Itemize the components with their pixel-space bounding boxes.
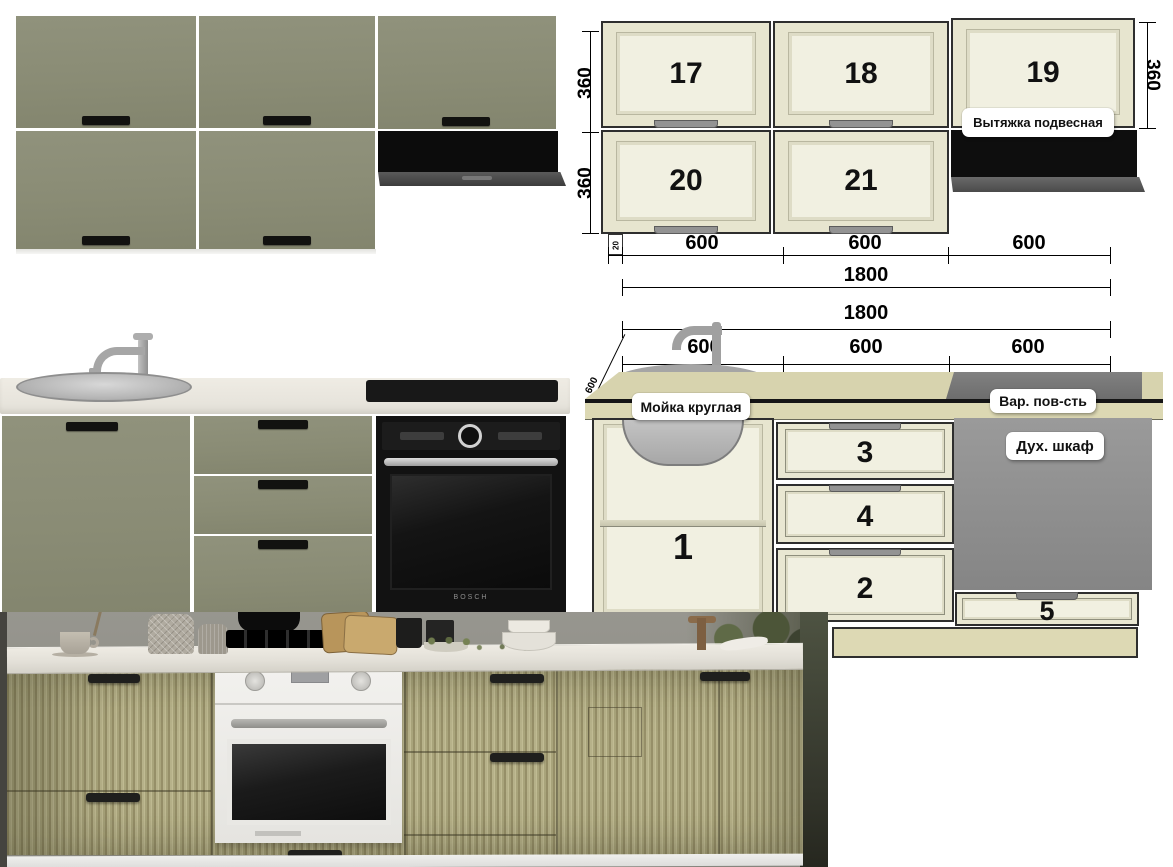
door-handle <box>263 236 311 245</box>
coffee-cup <box>60 632 90 654</box>
small-vase <box>198 624 228 654</box>
dim-tick <box>582 233 599 234</box>
dim-1800: 1800 <box>826 302 906 325</box>
diagram-cabinet-20: 20 <box>601 130 771 234</box>
unit-number: 2 <box>778 572 952 606</box>
hood-switch <box>462 176 492 180</box>
diagram-drawer-3: 3 <box>776 422 954 480</box>
drawer-front <box>194 476 372 534</box>
upper-cabinets-diagram: 17 18 19 20 21 Вытяжка подвесная <box>578 6 1173 298</box>
dim-small-box: 20 <box>608 234 623 255</box>
door-handle <box>82 116 130 125</box>
dim-tick <box>783 247 784 264</box>
diagram-hood <box>951 130 1137 177</box>
base-door <box>2 416 190 613</box>
cooker-hood-underside <box>378 172 566 186</box>
dim-1800: 1800 <box>826 264 906 287</box>
drawer-handle <box>258 540 308 549</box>
faucet-spout <box>93 347 145 373</box>
dim-360-left-top: 360 <box>575 61 597 105</box>
dim-tick <box>582 31 599 32</box>
photo-handle <box>490 753 544 762</box>
cooktop <box>366 380 558 402</box>
dim-tick <box>622 247 623 264</box>
kitchen-photo <box>0 612 828 867</box>
sink-label: Мойка круглая <box>632 393 750 420</box>
oven-window <box>390 474 552 590</box>
oven-knob <box>245 671 265 691</box>
door-handle <box>66 422 118 431</box>
base-cabinets-diagram: 1800 600 600 600 600 Мойка круглая Вар. … <box>578 298 1173 662</box>
panel-frame-lines <box>588 707 642 757</box>
drawer-handle-notch <box>829 549 901 556</box>
cooker-hood-render <box>378 131 558 172</box>
cabinet-number: 17 <box>603 57 769 91</box>
drawer-handle <box>258 420 308 429</box>
dim-tick <box>622 279 623 296</box>
textured-vase <box>148 614 194 654</box>
dim-tick <box>783 356 784 373</box>
drawer-handle-notch <box>829 423 901 430</box>
dim-line <box>622 287 1110 288</box>
round-sink <box>16 372 192 402</box>
cutting-board <box>343 615 399 656</box>
kitchen-design-sheet: 17 18 19 20 21 Вытяжка подвесная <box>0 0 1173 867</box>
drawer-front <box>194 536 372 613</box>
cabinet-number: 19 <box>953 56 1133 90</box>
wall-cabinet-door <box>16 131 196 249</box>
diagram-plinth <box>832 627 1138 658</box>
wall-cabinet-door <box>199 131 375 249</box>
cabinet-seam <box>211 668 213 855</box>
dim-tick <box>948 247 949 264</box>
oven-display <box>400 432 444 440</box>
photo-handle <box>700 672 750 681</box>
drawer-handle-notch <box>829 485 901 492</box>
diagram-drawer-2: 2 <box>776 548 954 622</box>
dim-360-right: 360 <box>1141 53 1163 97</box>
cabinet-number: 21 <box>775 164 947 198</box>
hood-label: Вытяжка подвесная <box>962 108 1114 137</box>
cabinet-number: 18 <box>775 57 947 91</box>
oven-knob <box>351 671 371 691</box>
cabinet-seam <box>556 668 558 855</box>
flap-handle <box>829 120 893 128</box>
diagram-drawer-4: 4 <box>776 484 954 544</box>
dim-600: 600 <box>999 232 1059 255</box>
photo-plinth <box>7 854 803 867</box>
door-handle <box>82 236 130 245</box>
unit-number: 1 <box>594 526 772 568</box>
dim-tick <box>1139 22 1156 23</box>
diagram-cabinet-17: 17 <box>601 21 771 128</box>
white-bowl-bottom <box>502 632 556 651</box>
flap-handle <box>654 120 718 128</box>
dim-tick <box>1110 279 1111 296</box>
oven-brand-smudge <box>255 831 301 836</box>
oven-door-window <box>227 739 391 825</box>
oven-panel-seam <box>215 703 402 705</box>
unit-number: 4 <box>778 500 952 534</box>
photo-right-shadow <box>800 612 828 867</box>
oven-handle-bar <box>231 719 387 728</box>
black-pan <box>238 612 300 632</box>
photo-handle <box>490 674 544 683</box>
hob-label: Вар. пов-сть <box>990 389 1096 413</box>
oven-brand: BOSCH <box>376 594 566 601</box>
dim-tick <box>622 356 623 373</box>
oven-label: Дух. шкаф <box>1006 432 1104 460</box>
wall-cabinet-door <box>16 16 196 128</box>
black-mug <box>396 618 422 648</box>
oven-handle <box>384 458 558 466</box>
dim-tick <box>1110 247 1111 264</box>
diagram-sink-cabinet: 1 <box>592 418 774 621</box>
dim-tick <box>1110 321 1111 338</box>
dim-600: 600 <box>672 232 732 255</box>
cabinet-number: 20 <box>603 164 769 198</box>
dim-small: 20 <box>612 234 621 255</box>
dim-tick <box>949 356 950 373</box>
drawer-front <box>194 416 372 474</box>
upper-cabinets-render <box>8 14 560 260</box>
base-cabinets-render: BOSCH <box>0 330 572 613</box>
bronze-faucet <box>697 618 706 650</box>
photo-handle <box>88 674 140 683</box>
photo-oven <box>215 657 402 843</box>
photo-left-edge <box>0 612 7 867</box>
unit-number: 5 <box>957 596 1137 627</box>
oven-dial <box>458 424 482 448</box>
oven-display <box>498 432 542 440</box>
diagram-cabinet-21: 21 <box>773 130 949 234</box>
diagram-hood-underside <box>951 177 1145 192</box>
unit-number: 3 <box>778 436 952 470</box>
drawer-seam <box>7 790 211 792</box>
dim-360-left-bottom: 360 <box>575 161 597 205</box>
dim-600: 600 <box>835 232 895 255</box>
dim-600: 600 <box>836 336 896 359</box>
diagram-drawer-5: 5 <box>955 592 1139 626</box>
photo-handle <box>86 793 140 802</box>
drawer-seam <box>404 834 556 836</box>
cabinet-seam <box>404 668 406 855</box>
door-handle <box>442 117 490 126</box>
wall-cabinet-door <box>378 16 556 129</box>
wall-cabinet-door <box>199 16 375 128</box>
door-handle <box>263 116 311 125</box>
diagram-cabinet-18: 18 <box>773 21 949 128</box>
cup-handle <box>88 637 99 648</box>
dim-line <box>608 255 1110 256</box>
dim-tick <box>608 247 609 264</box>
oven-render: BOSCH <box>376 416 566 613</box>
cabinet-bottom-edge <box>16 249 376 254</box>
drawer-handle <box>258 480 308 489</box>
cabinet-seam <box>718 668 720 855</box>
faucet-lever <box>133 333 153 340</box>
dim-600: 600 <box>998 336 1058 359</box>
dim-tick <box>582 132 599 133</box>
dim-tick <box>1139 128 1156 129</box>
dim-tick <box>1110 356 1111 373</box>
